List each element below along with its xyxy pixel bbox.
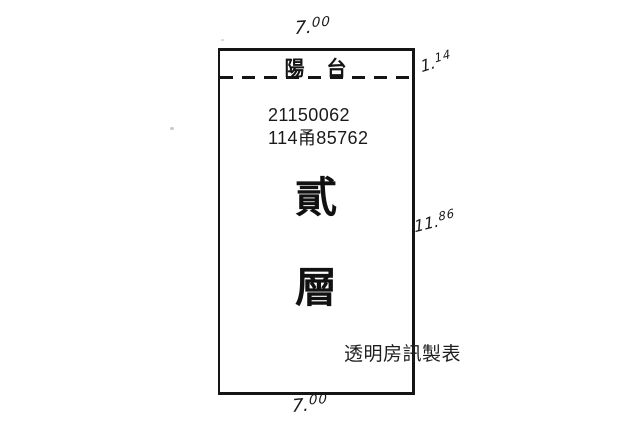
paper-speck	[221, 39, 224, 41]
registration-line2: 114甬85762	[268, 127, 368, 150]
dimension-top-width: 7.00	[294, 14, 331, 39]
dimension-bottom-width-int: 7.	[292, 394, 309, 417]
dimension-bottom-width: 7.00	[292, 392, 328, 417]
credit-text: 透明房訊製表	[344, 339, 461, 366]
registration-line1: 21150062	[268, 104, 368, 127]
dimension-balcony-depth-frac: 14	[434, 47, 453, 66]
dimension-right-depth: 11.86	[413, 206, 456, 237]
dimension-balcony-depth: 1.14	[419, 47, 453, 77]
dimension-bottom-width-frac: 00	[309, 392, 328, 409]
dimension-top-width-frac: 00	[312, 14, 331, 30]
paper-speck	[170, 127, 174, 130]
dimension-top-width-int: 7.	[294, 17, 312, 39]
floor-label-bottom-char: 層	[220, 267, 412, 309]
balcony-divider-dashed-line	[220, 76, 412, 79]
floor-plan-page: 7.00 陽 台 21150062 114甬85762 貳 層 1.14 11.…	[0, 0, 640, 441]
floor-label-top-char: 貳	[220, 177, 412, 219]
dimension-right-depth-frac: 86	[438, 206, 456, 224]
dimension-right-depth-int: 11.	[413, 211, 440, 236]
registration-numbers: 21150062 114甬85762	[268, 104, 368, 150]
